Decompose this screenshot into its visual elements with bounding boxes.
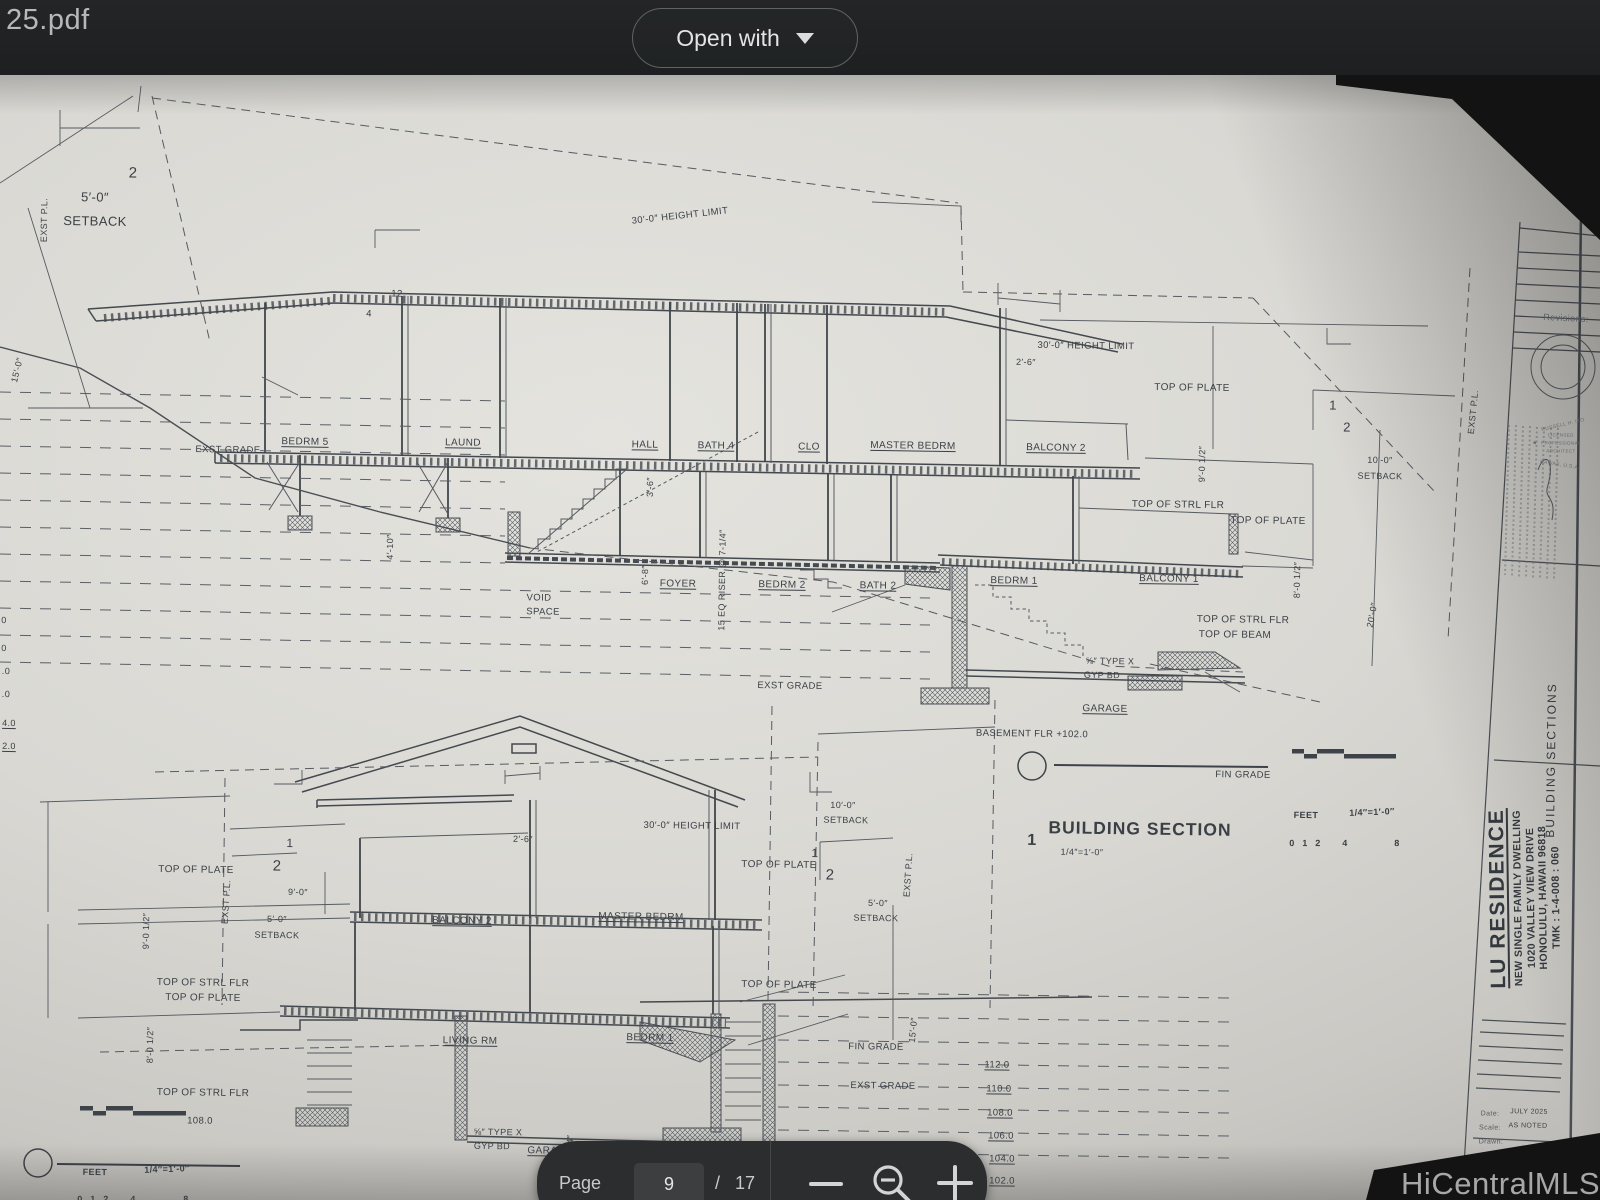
drawing-label: 0 [77, 1194, 83, 1200]
drawing-label: RUSSELL H. ITO [1541, 417, 1585, 433]
drawing-label: 8 [183, 1194, 189, 1200]
drawing-label: 1/4″=1′-0″ [1349, 806, 1395, 818]
drawing-labels-layer: 25′-0″SETBACKEXST P.L.15′-0″30′-0″ HEIGH… [0, 75, 1600, 1200]
drawing-label: TOP OF STRL FLR [157, 1087, 250, 1099]
drawing-label: 1 [1027, 832, 1037, 850]
drawing-label: 15′-0″ [907, 1017, 920, 1043]
page-number-input[interactable] [634, 1163, 704, 1200]
drawing-label: BUILDING SECTION [1048, 817, 1232, 841]
drawing-label: BALCONY 2 [432, 915, 492, 927]
drawing-label: 0 [1, 643, 7, 653]
drawing-label: 1 [1302, 838, 1308, 848]
drawing-label: SETBACK [824, 815, 869, 826]
drawing-label: 1 [1329, 397, 1337, 412]
drawing-label: LICENSED [1548, 432, 1574, 437]
drawing-label: 10′-0″ [1367, 455, 1392, 465]
drawing-label: GARAGE [1082, 703, 1127, 715]
drawing-label: LAUND [445, 437, 481, 449]
drawing-label: BEDRM 5 [281, 436, 328, 448]
drawing-label: EXST GRADE [195, 444, 260, 456]
drawing-label: 110.0 [986, 1083, 1011, 1094]
drawing-label: 2 [273, 857, 282, 874]
drawing-label: 2 [826, 866, 835, 883]
page-separator: / [715, 1173, 720, 1194]
drawing-label: TOP OF PLATE [741, 979, 817, 991]
drawing-label: 108.0 [187, 1115, 213, 1126]
drawing-label: 112.0 [984, 1059, 1009, 1070]
drawing-label: 8 [1394, 838, 1400, 848]
drawing-label: TOP OF STRL FLR [1132, 499, 1225, 511]
drawing-label: 4 [130, 1194, 136, 1200]
drawing-label: 1/4″=1′-0″ [144, 1163, 190, 1175]
drawing-label: AS NOTED [1508, 1122, 1547, 1130]
drawing-label: TOP OF PLATE [741, 859, 817, 871]
drawing-label: 9′-0 1/2″ [1197, 446, 1208, 483]
drawing-label: 1/4″=1′-0″ [1061, 847, 1104, 858]
zoom-in-button[interactable] [935, 1163, 975, 1200]
drawing-label: BEDRM 2 [758, 579, 805, 591]
drawing-label: Drawn: [1479, 1138, 1504, 1145]
drawing-label: 106.0 [988, 1130, 1014, 1141]
drawing-label: 108.0 [987, 1107, 1013, 1118]
drawing-label: FEET [1294, 810, 1319, 820]
drawing-label: SETBACK [63, 213, 127, 229]
drawing-label: Scale: [1479, 1124, 1501, 1131]
drawing-label: 6′-8″ [640, 565, 650, 585]
drawing-label: EXST GRADE [850, 1080, 915, 1092]
drawing-label: 9′-0″ [288, 887, 308, 897]
drawing-label: BASEMENT FLR +102.0 [976, 728, 1088, 741]
drawing-label: 4.0 [2, 718, 16, 728]
watermark: HiCentralMLS [1401, 1166, 1600, 1200]
drawing-label: TOP OF PLATE [1154, 382, 1230, 394]
drawing-label: EXST P.L. [1466, 389, 1480, 434]
drawing-label: 4′-10″ [385, 534, 395, 559]
drawing-label: BEDRM 1 [990, 575, 1037, 587]
drawing-label: 2.0 [2, 741, 16, 751]
drawing-label: 2 [1315, 838, 1321, 848]
drawing-label: SETBACK [255, 930, 300, 941]
drawing-label: SPACE [526, 606, 560, 617]
drawing-label: GYP BD [474, 1141, 510, 1152]
drawing-label: SETBACK [1358, 471, 1403, 482]
drawing-label: 1 [90, 1194, 96, 1200]
drawing-label: ARCHITECT [1546, 448, 1575, 453]
drawing-label: FIN GRADE [1215, 769, 1270, 781]
drawing-label: ⅝″ TYPE X [1086, 656, 1135, 667]
drawing-label: 8′-0 1/2″ [1292, 562, 1303, 599]
drawing-label: TOP OF PLATE [158, 864, 234, 876]
drawing-label: 3′-6″ [645, 477, 655, 497]
drawing-label: SETBACK [854, 913, 899, 924]
drawing-label: 5′-0″ [267, 914, 287, 924]
drawing-label: 10′-0″ [830, 800, 855, 810]
drawing-label: BALCONY 1 [1139, 573, 1199, 585]
drawing-label: EXST P.L. [39, 198, 50, 242]
drawing-label: 2 [103, 1194, 109, 1200]
drawing-label: 2′-6″ [513, 834, 533, 844]
drawing-label: FOYER [660, 578, 697, 590]
drawing-label: 2 [1343, 419, 1351, 434]
drawing-label: TOP OF STRL FLR [157, 977, 250, 989]
drawing-label: .0 [2, 666, 10, 676]
drawing-label: .0 [2, 689, 10, 699]
page-label: Page [559, 1173, 601, 1194]
drawing-label: 5′-0″ [81, 189, 109, 204]
drawing-label: BALCONY 2 [1026, 442, 1086, 454]
drawing-label: EXST P.L. [902, 853, 915, 898]
drawing-label: BATH 2 [860, 580, 897, 592]
drawing-label: 8′-0 1/2″ [145, 1027, 156, 1064]
drawing-label: ★ [1532, 439, 1538, 446]
drawing-label: MASTER BEDRM [598, 911, 684, 923]
drawing-label: TOP OF PLATE [1230, 515, 1306, 527]
drawing-label: 15′-0″ [9, 357, 25, 384]
drawing-label: 0 [1, 615, 7, 625]
drawing-label: 104.0 [989, 1153, 1015, 1164]
drawing-label: 30′-0″ HEIGHT LIMIT [1037, 340, 1134, 352]
drawing-label: Date: [1481, 1110, 1500, 1117]
drawing-label: Revisions: [1543, 312, 1589, 324]
drawing-label: LIVING RM [443, 1035, 498, 1047]
drawing-label: MASTER BEDRM [870, 440, 956, 452]
project-name: LU RESIDENCE [1485, 808, 1512, 989]
drawing-label: HALL [632, 439, 659, 450]
drawing-label: BEDRM 1 [626, 1032, 673, 1044]
chevron-down-icon [796, 33, 814, 44]
open-with-button[interactable]: Open with [632, 8, 858, 68]
drawing-label: 5′-0″ [868, 898, 888, 908]
drawing-label: 30′-0″ HEIGHT LIMIT [631, 205, 729, 226]
open-with-label: Open with [676, 25, 780, 52]
drawing-label: JULY 2025 [1510, 1108, 1548, 1116]
drawing-label: ⅝″ TYPE X [474, 1127, 523, 1138]
drawing-label: 102.0 [989, 1175, 1015, 1186]
drawing-label: PROFESSIONAL [1541, 440, 1581, 446]
drawing-label: 9′-0 1/2″ [141, 913, 152, 950]
drawing-label: 0 [1289, 838, 1295, 848]
magnifier-minus-icon[interactable] [869, 1161, 915, 1200]
drawing-label: CLO [798, 441, 820, 452]
drawing-label: 4 [1342, 838, 1348, 848]
toolbar-divider [770, 1141, 771, 1200]
drawing-label: 2 [129, 164, 138, 181]
drawing-label: 15 EQ RISER @ 7-1/4″ [716, 529, 727, 630]
drawing-label: TOP OF STRL FLR [1197, 614, 1290, 626]
drawing-label: TOP OF BEAM [1199, 629, 1272, 641]
file-name: 25.pdf [6, 4, 90, 37]
page-total: 17 [735, 1173, 755, 1194]
drawing-label: HAWAII, U.S.A. [1540, 459, 1581, 471]
drawing-label: 1 [811, 846, 818, 860]
project-line-3: HONOLULU, HAWAII 96818 [1536, 807, 1551, 988]
drawing-label: 2′-6″ [1016, 357, 1036, 367]
drawing-label: 12 [391, 288, 403, 299]
drawing-label: FIN GRADE [848, 1041, 903, 1053]
drawing-label: BATH 4 [698, 440, 735, 452]
viewer-top-bar: 25.pdf Open with [0, 0, 1600, 75]
page-toolbar: Page / 17 [537, 1141, 987, 1200]
drawing-label: EXST GRADE [757, 680, 822, 692]
drawing-label: 20′-0″ [1365, 602, 1380, 629]
drawing-label: VOID [527, 592, 552, 603]
zoom-out-button[interactable] [809, 1182, 843, 1186]
drawing-label: GYP BD [1084, 670, 1120, 681]
project-line-4: TMK : 1-4-008 : 060 [1548, 807, 1563, 988]
drawing-label: 4 [366, 308, 372, 319]
pdf-viewer-window: 25′-0″SETBACKEXST P.L.15′-0″30′-0″ HEIGH… [0, 0, 1600, 1200]
drawing-label: FEET [83, 1167, 108, 1177]
drawing-label: EXST P.L. [220, 880, 233, 925]
drawing-label: 30′-0″ HEIGHT LIMIT [643, 820, 740, 832]
drawing-label: 1 [286, 836, 293, 850]
drawing-label: TOP OF PLATE [165, 992, 241, 1004]
